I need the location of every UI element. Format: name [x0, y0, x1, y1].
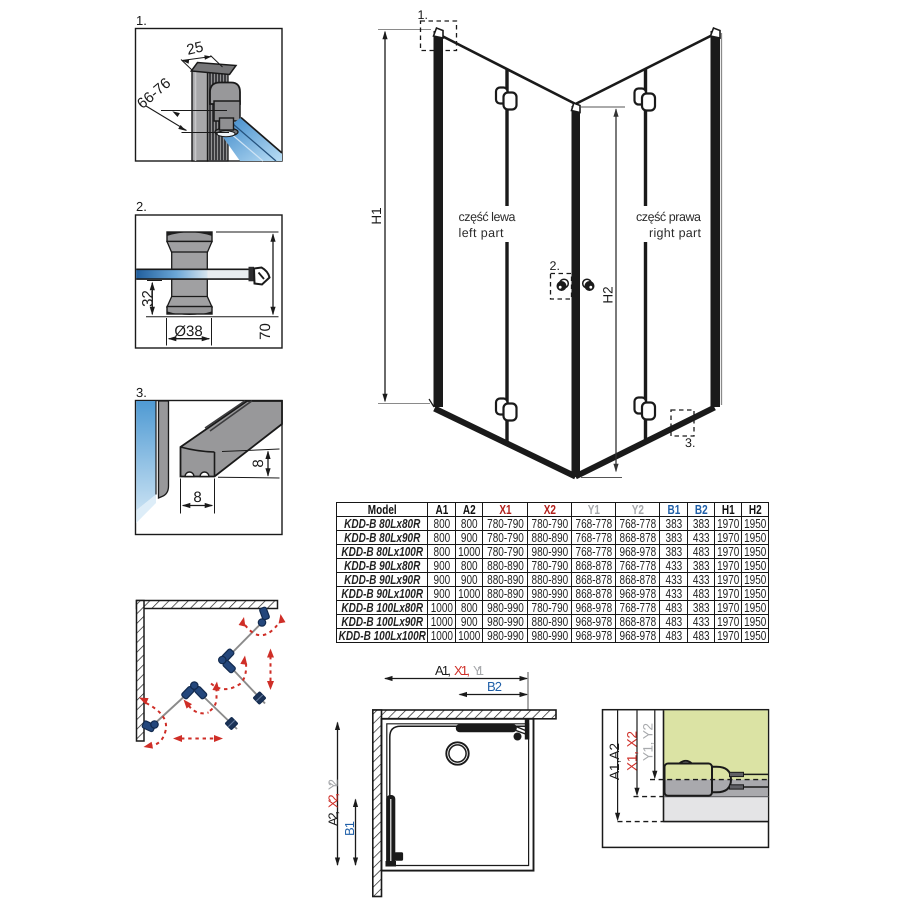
svg-text:A1,: A1,: [435, 663, 451, 678]
svg-text:X2,: X2,: [326, 793, 341, 808]
svg-text:Ø38: Ø38: [174, 323, 202, 340]
svg-text:Y1, Y2: Y1, Y2: [641, 723, 656, 761]
svg-text:2.: 2.: [136, 199, 147, 214]
svg-text:H1: H1: [369, 207, 384, 224]
svg-text:8: 8: [250, 459, 267, 467]
svg-text:32: 32: [140, 290, 157, 307]
svg-text:B2: B2: [487, 679, 502, 694]
svg-text:Y2: Y2: [326, 779, 341, 790]
svg-text:H2: H2: [601, 286, 616, 303]
svg-text:left part: left part: [459, 226, 505, 240]
svg-text:część lewa: część lewa: [459, 210, 516, 224]
svg-text:1.: 1.: [418, 8, 428, 22]
svg-text:70: 70: [257, 323, 274, 340]
svg-text:1.: 1.: [136, 13, 147, 28]
svg-text:right part: right part: [649, 226, 702, 240]
svg-text:8: 8: [193, 489, 201, 506]
svg-text:A2,: A2,: [326, 811, 341, 826]
svg-text:3.: 3.: [685, 436, 695, 450]
svg-text:A1,A2: A1,A2: [607, 743, 622, 780]
svg-text:2.: 2.: [550, 259, 560, 273]
svg-text:B1: B1: [342, 821, 357, 836]
svg-text:część prawa: część prawa: [636, 210, 701, 224]
svg-text:X1, X2: X1, X2: [625, 731, 640, 771]
svg-text:X1,: X1,: [454, 663, 470, 678]
svg-text:Y1: Y1: [473, 663, 484, 678]
svg-text:3.: 3.: [136, 385, 147, 400]
